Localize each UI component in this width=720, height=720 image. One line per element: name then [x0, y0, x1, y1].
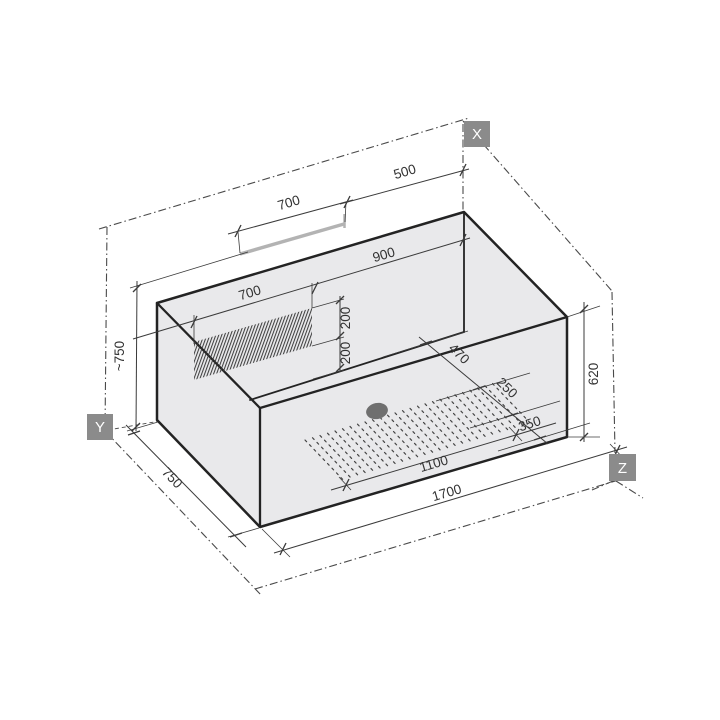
dim-label-rail-700: 700 [276, 192, 302, 213]
envelope-right-vertical-edge [612, 292, 615, 453]
technical-drawing: 700 500 700 900 200 200 ~750 [0, 0, 720, 720]
x-axis-label: X [472, 126, 482, 143]
grab-rail [240, 214, 345, 254]
dim-label-200-upper: 200 [338, 307, 353, 330]
envelope-z-tail-left [592, 481, 613, 490]
dim-line-height-750 [136, 281, 137, 431]
envelope-left-vertical-edge [105, 227, 107, 431]
dim-label-500: 500 [392, 161, 418, 182]
dim-label-width-750: 750 [159, 465, 185, 492]
dim-label-620: 620 [586, 363, 601, 386]
dim-label-height-750: ~750 [112, 341, 127, 371]
grab-rail-bar [240, 224, 344, 254]
z-axis-label: Z [618, 460, 627, 477]
dim-label-200-lower: 200 [338, 342, 353, 365]
y-axis-label: Y [95, 419, 105, 436]
drawing-canvas: 700 500 700 900 200 200 ~750 [0, 0, 720, 720]
envelope-z-tail-right [616, 481, 643, 498]
